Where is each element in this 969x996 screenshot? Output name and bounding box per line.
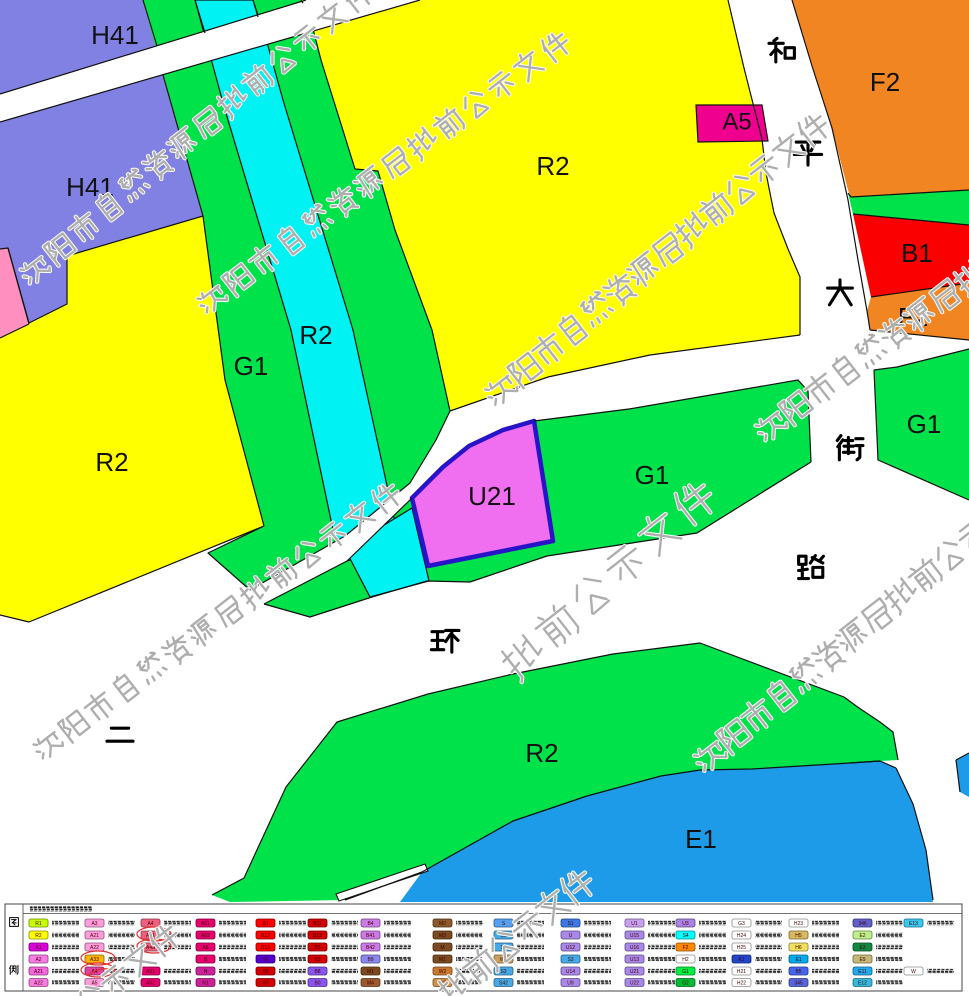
svg-text:H22: H22 — [737, 980, 746, 986]
svg-text:N1: N1 — [202, 980, 209, 986]
svg-text:A62: A62 — [201, 933, 210, 939]
svg-text:B2: B2 — [314, 945, 320, 951]
svg-text:B11: B11 — [313, 921, 322, 927]
svg-text:A2: A2 — [35, 957, 41, 963]
svg-text:S4: S4 — [682, 933, 688, 939]
svg-text:E3: E3 — [859, 945, 865, 951]
svg-text:R2: R2 — [35, 933, 42, 939]
svg-text:B13: B13 — [261, 945, 270, 951]
svg-text:B8: B8 — [314, 969, 320, 975]
svg-text:B1: B1 — [262, 921, 268, 927]
svg-text:U16: U16 — [630, 945, 639, 951]
svg-text:U15: U15 — [630, 933, 639, 939]
svg-text:M1: M1 — [367, 969, 374, 975]
svg-text:M1: M1 — [439, 957, 446, 963]
svg-text:W: W — [263, 957, 268, 963]
svg-text:H24: H24 — [737, 933, 746, 939]
svg-text:F2: F2 — [683, 945, 689, 951]
svg-text:A1: A1 — [35, 945, 41, 951]
svg-text:A21: A21 — [34, 969, 43, 975]
svg-text:E13: E13 — [909, 921, 918, 927]
svg-text:G3: G3 — [738, 921, 745, 927]
svg-text:A61: A61 — [201, 921, 210, 927]
svg-text:G1: G1 — [635, 460, 670, 490]
svg-text:B12: B12 — [261, 933, 270, 939]
svg-text:A6: A6 — [202, 945, 208, 951]
svg-text:S1: S1 — [567, 921, 573, 927]
svg-text:S42: S42 — [499, 980, 508, 986]
svg-text:U9: U9 — [567, 980, 574, 986]
svg-text:B9: B9 — [367, 957, 373, 963]
svg-text:E1: E1 — [685, 824, 717, 854]
svg-text:B6: B6 — [262, 969, 268, 975]
svg-text:R2: R2 — [536, 151, 569, 181]
svg-text:A21: A21 — [90, 933, 99, 939]
svg-text:B3: B3 — [314, 957, 320, 963]
svg-text:B1: B1 — [901, 238, 933, 268]
svg-text:A51: A51 — [146, 969, 155, 975]
svg-text:N: N — [204, 969, 208, 975]
svg-text:U13: U13 — [630, 957, 639, 963]
svg-text:A33: A33 — [90, 957, 99, 963]
svg-text:R1: R1 — [35, 921, 42, 927]
svg-text:H6: H6 — [795, 945, 802, 951]
svg-text:U1: U1 — [631, 921, 638, 927]
svg-text:G2: G2 — [682, 980, 689, 986]
svg-text:B5: B5 — [795, 969, 801, 975]
svg-text:346: 346 — [858, 921, 867, 927]
svg-text:M2: M2 — [439, 921, 446, 927]
svg-text:M4: M4 — [367, 980, 374, 986]
svg-text:W2: W2 — [439, 969, 447, 975]
svg-text:H25: H25 — [737, 945, 746, 951]
svg-text:A22: A22 — [34, 980, 43, 986]
svg-text:M3: M3 — [439, 933, 446, 939]
svg-text:U21: U21 — [630, 969, 639, 975]
svg-text:A3: A3 — [91, 921, 97, 927]
svg-text:K1: K1 — [738, 957, 744, 963]
svg-text:S3: S3 — [500, 969, 506, 975]
svg-text:S3: S3 — [567, 957, 573, 963]
svg-text:E12: E12 — [858, 980, 867, 986]
svg-text:A5: A5 — [91, 980, 97, 986]
svg-text:U14: U14 — [566, 969, 575, 975]
svg-text:H2: H2 — [682, 957, 689, 963]
svg-text:U: U — [569, 933, 573, 939]
svg-text:E1: E1 — [795, 957, 801, 963]
svg-text:E2: E2 — [859, 933, 865, 939]
svg-text:B13: B13 — [313, 933, 322, 939]
svg-text:G1: G1 — [234, 351, 269, 381]
svg-text:H21: H21 — [737, 969, 746, 975]
svg-text:G1: G1 — [682, 969, 689, 975]
svg-text:R2: R2 — [95, 447, 128, 477]
svg-text:H5: H5 — [795, 933, 802, 939]
svg-text:U12: U12 — [566, 945, 575, 951]
svg-text:A52: A52 — [146, 980, 155, 986]
svg-text:H41: H41 — [91, 20, 139, 50]
svg-text:A4: A4 — [147, 921, 153, 927]
svg-text:A22: A22 — [90, 945, 99, 951]
svg-text:H23: H23 — [794, 921, 803, 927]
svg-text:B0: B0 — [314, 980, 320, 986]
svg-text:W: W — [911, 969, 916, 975]
svg-text:B4: B4 — [367, 921, 373, 927]
svg-text:U22: U22 — [630, 980, 639, 986]
svg-text:B7: B7 — [262, 980, 268, 986]
svg-text:M: M — [440, 945, 444, 951]
svg-text:U21: U21 — [468, 481, 516, 511]
svg-text:345: 345 — [794, 980, 803, 986]
svg-text:R2: R2 — [299, 320, 332, 350]
svg-text:B42: B42 — [366, 945, 375, 951]
svg-text:A5: A5 — [722, 108, 751, 135]
svg-text:U3: U3 — [682, 921, 689, 927]
svg-text:R2: R2 — [525, 738, 558, 768]
svg-text:E9: E9 — [859, 957, 865, 963]
svg-text:G1: G1 — [907, 409, 942, 439]
svg-text:F2: F2 — [870, 67, 900, 97]
svg-text:E11: E11 — [858, 969, 867, 975]
svg-text:B41: B41 — [366, 933, 375, 939]
